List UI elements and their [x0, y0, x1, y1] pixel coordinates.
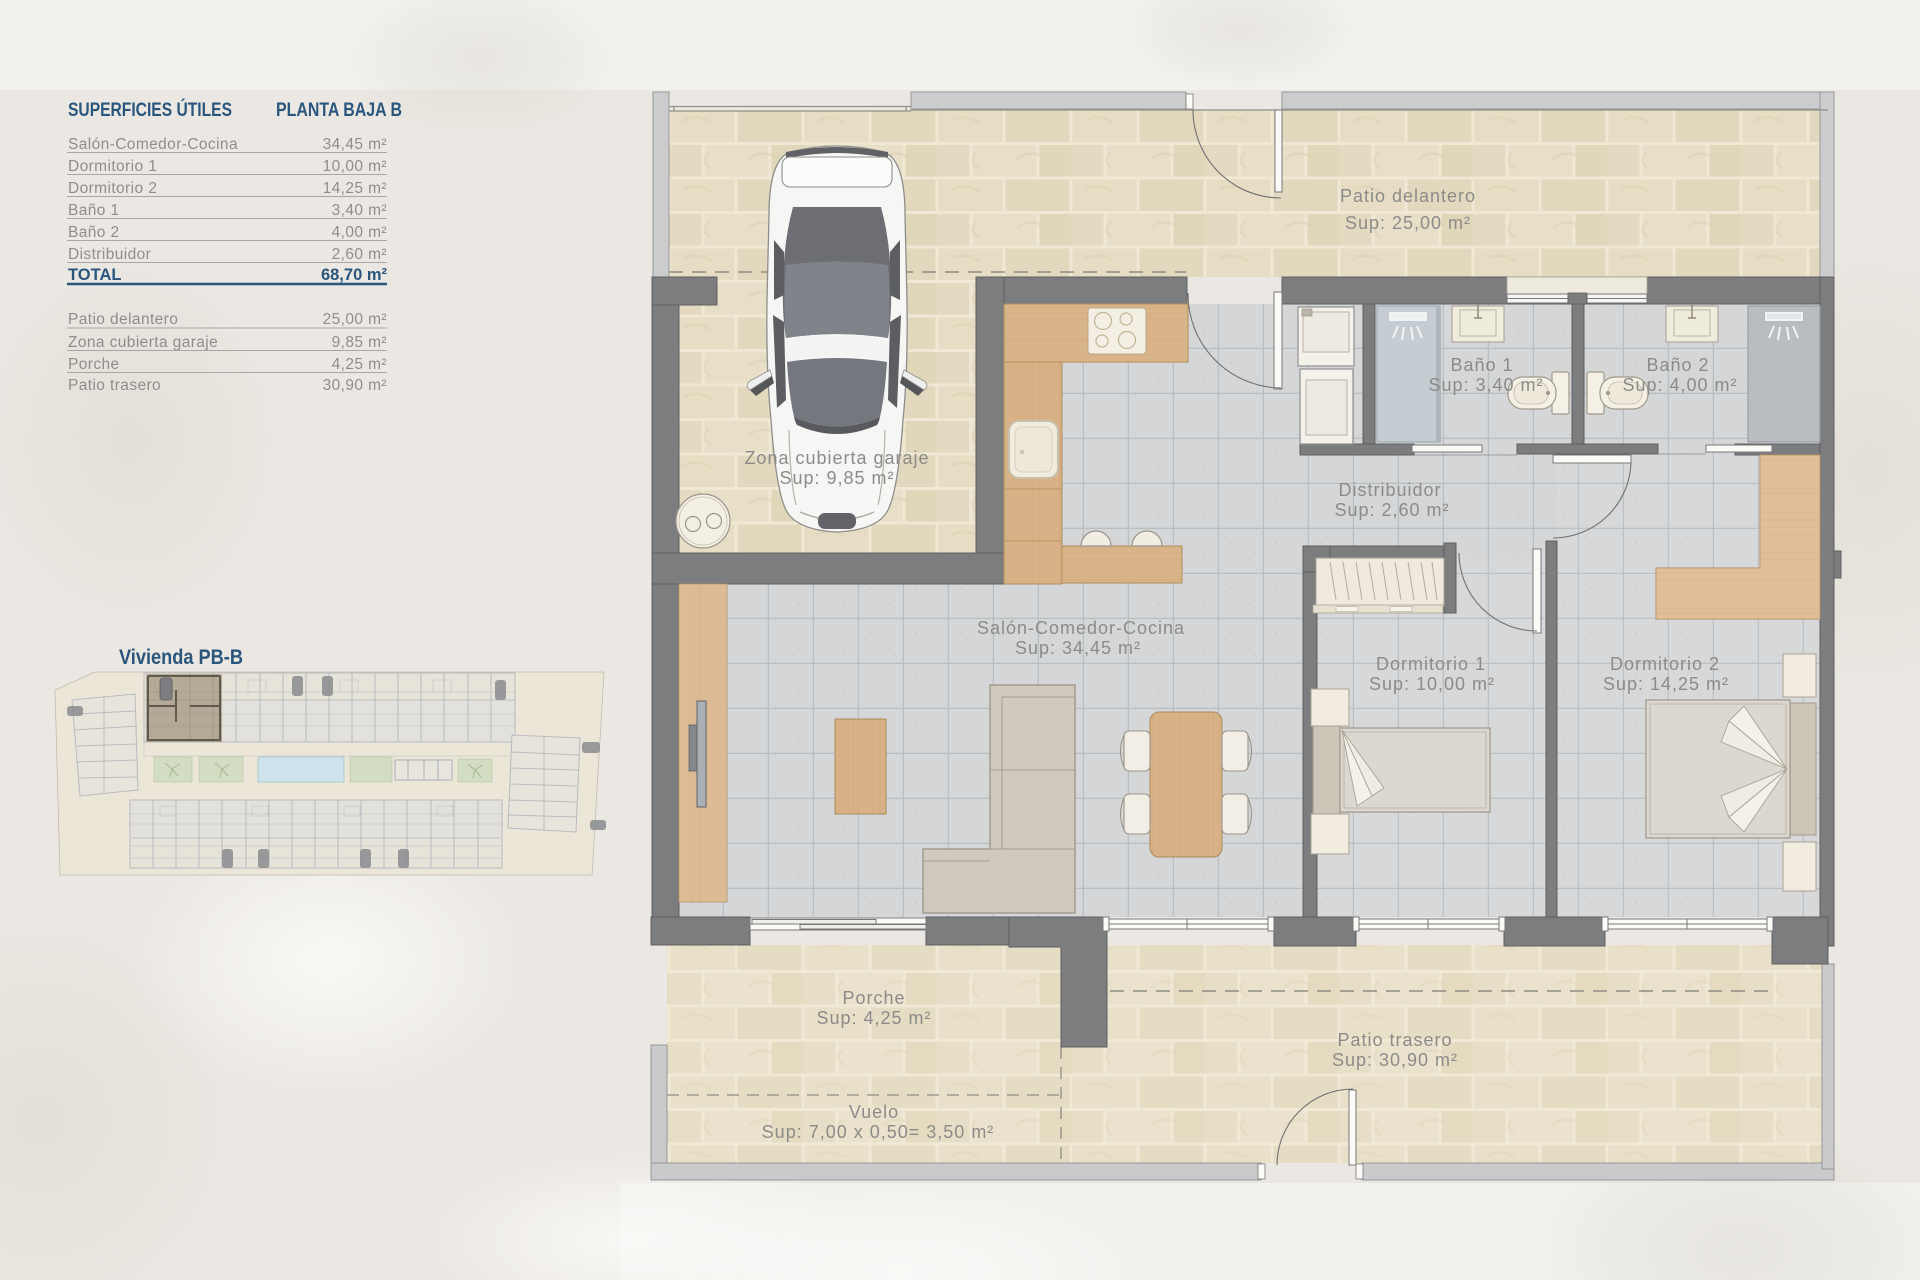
svg-text:3,40 m²: 3,40 m²	[332, 202, 387, 219]
svg-text:Sup: 30,90 m²: Sup: 30,90 m²	[1332, 1050, 1458, 1070]
svg-text:Sup: 34,45 m²: Sup: 34,45 m²	[1015, 638, 1141, 658]
svg-text:Sup: 4,25 m²: Sup: 4,25 m²	[816, 1008, 931, 1028]
svg-text:Dormitorio 1: Dormitorio 1	[68, 158, 157, 175]
svg-text:Dormitorio 1: Dormitorio 1	[1376, 654, 1486, 674]
svg-text:SUPERFICIES ÚTILES: SUPERFICIES ÚTILES	[68, 99, 232, 121]
svg-text:Sup: 7,00 x 0,50= 3,50 m²: Sup: 7,00 x 0,50= 3,50 m²	[762, 1122, 995, 1142]
svg-text:68,70 m²: 68,70 m²	[321, 266, 388, 284]
svg-text:Salón-Comedor-Cocina: Salón-Comedor-Cocina	[68, 136, 238, 153]
svg-text:4,25 m²: 4,25 m²	[332, 356, 387, 373]
svg-text:10,00 m²: 10,00 m²	[323, 158, 387, 175]
svg-text:Porche: Porche	[68, 356, 120, 373]
svg-text:Vivienda PB-B: Vivienda PB-B	[119, 646, 243, 669]
svg-text:Patio delantero: Patio delantero	[1340, 186, 1476, 206]
svg-text:Vuelo: Vuelo	[849, 1102, 899, 1122]
svg-text:Porche: Porche	[842, 988, 905, 1008]
svg-text:Dormitorio 2: Dormitorio 2	[68, 180, 157, 197]
svg-text:Patio trasero: Patio trasero	[68, 377, 161, 394]
svg-text:Baño 2: Baño 2	[68, 224, 120, 241]
svg-text:9,85 m²: 9,85 m²	[332, 334, 387, 351]
svg-text:Zona cubierta garaje: Zona cubierta garaje	[744, 448, 929, 468]
svg-text:Sup: 9,85 m²: Sup: 9,85 m²	[779, 468, 894, 488]
svg-text:Sup: 25,00 m²: Sup: 25,00 m²	[1345, 213, 1471, 233]
svg-text:Salón-Comedor-Cocina: Salón-Comedor-Cocina	[977, 618, 1185, 638]
svg-text:Sup: 4,00 m²: Sup: 4,00 m²	[1622, 375, 1737, 395]
svg-text:34,45 m²: 34,45 m²	[323, 136, 387, 153]
svg-text:PLANTA BAJA B: PLANTA BAJA B	[276, 100, 402, 121]
svg-text:Sup: 3,40 m²: Sup: 3,40 m²	[1428, 375, 1543, 395]
svg-text:Baño 1: Baño 1	[1450, 355, 1513, 375]
svg-text:14,25 m²: 14,25 m²	[323, 180, 387, 197]
svg-text:Dormitorio 2: Dormitorio 2	[1610, 654, 1720, 674]
svg-text:Distribuidor: Distribuidor	[68, 246, 151, 263]
svg-text:2,60 m²: 2,60 m²	[332, 246, 387, 263]
svg-text:Sup: 2,60 m²: Sup: 2,60 m²	[1334, 500, 1449, 520]
svg-text:Zona cubierta garaje: Zona cubierta garaje	[68, 334, 218, 351]
svg-text:Patio delantero: Patio delantero	[68, 311, 178, 328]
svg-text:Distribuidor: Distribuidor	[1338, 480, 1441, 500]
svg-text:Baño 2: Baño 2	[1646, 355, 1709, 375]
svg-text:Patio trasero: Patio trasero	[1337, 1030, 1452, 1050]
svg-text:25,00 m²: 25,00 m²	[323, 311, 387, 328]
svg-text:Sup: 14,25 m²: Sup: 14,25 m²	[1603, 674, 1729, 694]
svg-text:30,90 m²: 30,90 m²	[323, 377, 387, 394]
svg-text:4,00 m²: 4,00 m²	[332, 224, 387, 241]
svg-text:Baño 1: Baño 1	[68, 202, 120, 219]
svg-text:Sup: 10,00 m²: Sup: 10,00 m²	[1369, 674, 1495, 694]
svg-text:TOTAL: TOTAL	[68, 266, 121, 284]
